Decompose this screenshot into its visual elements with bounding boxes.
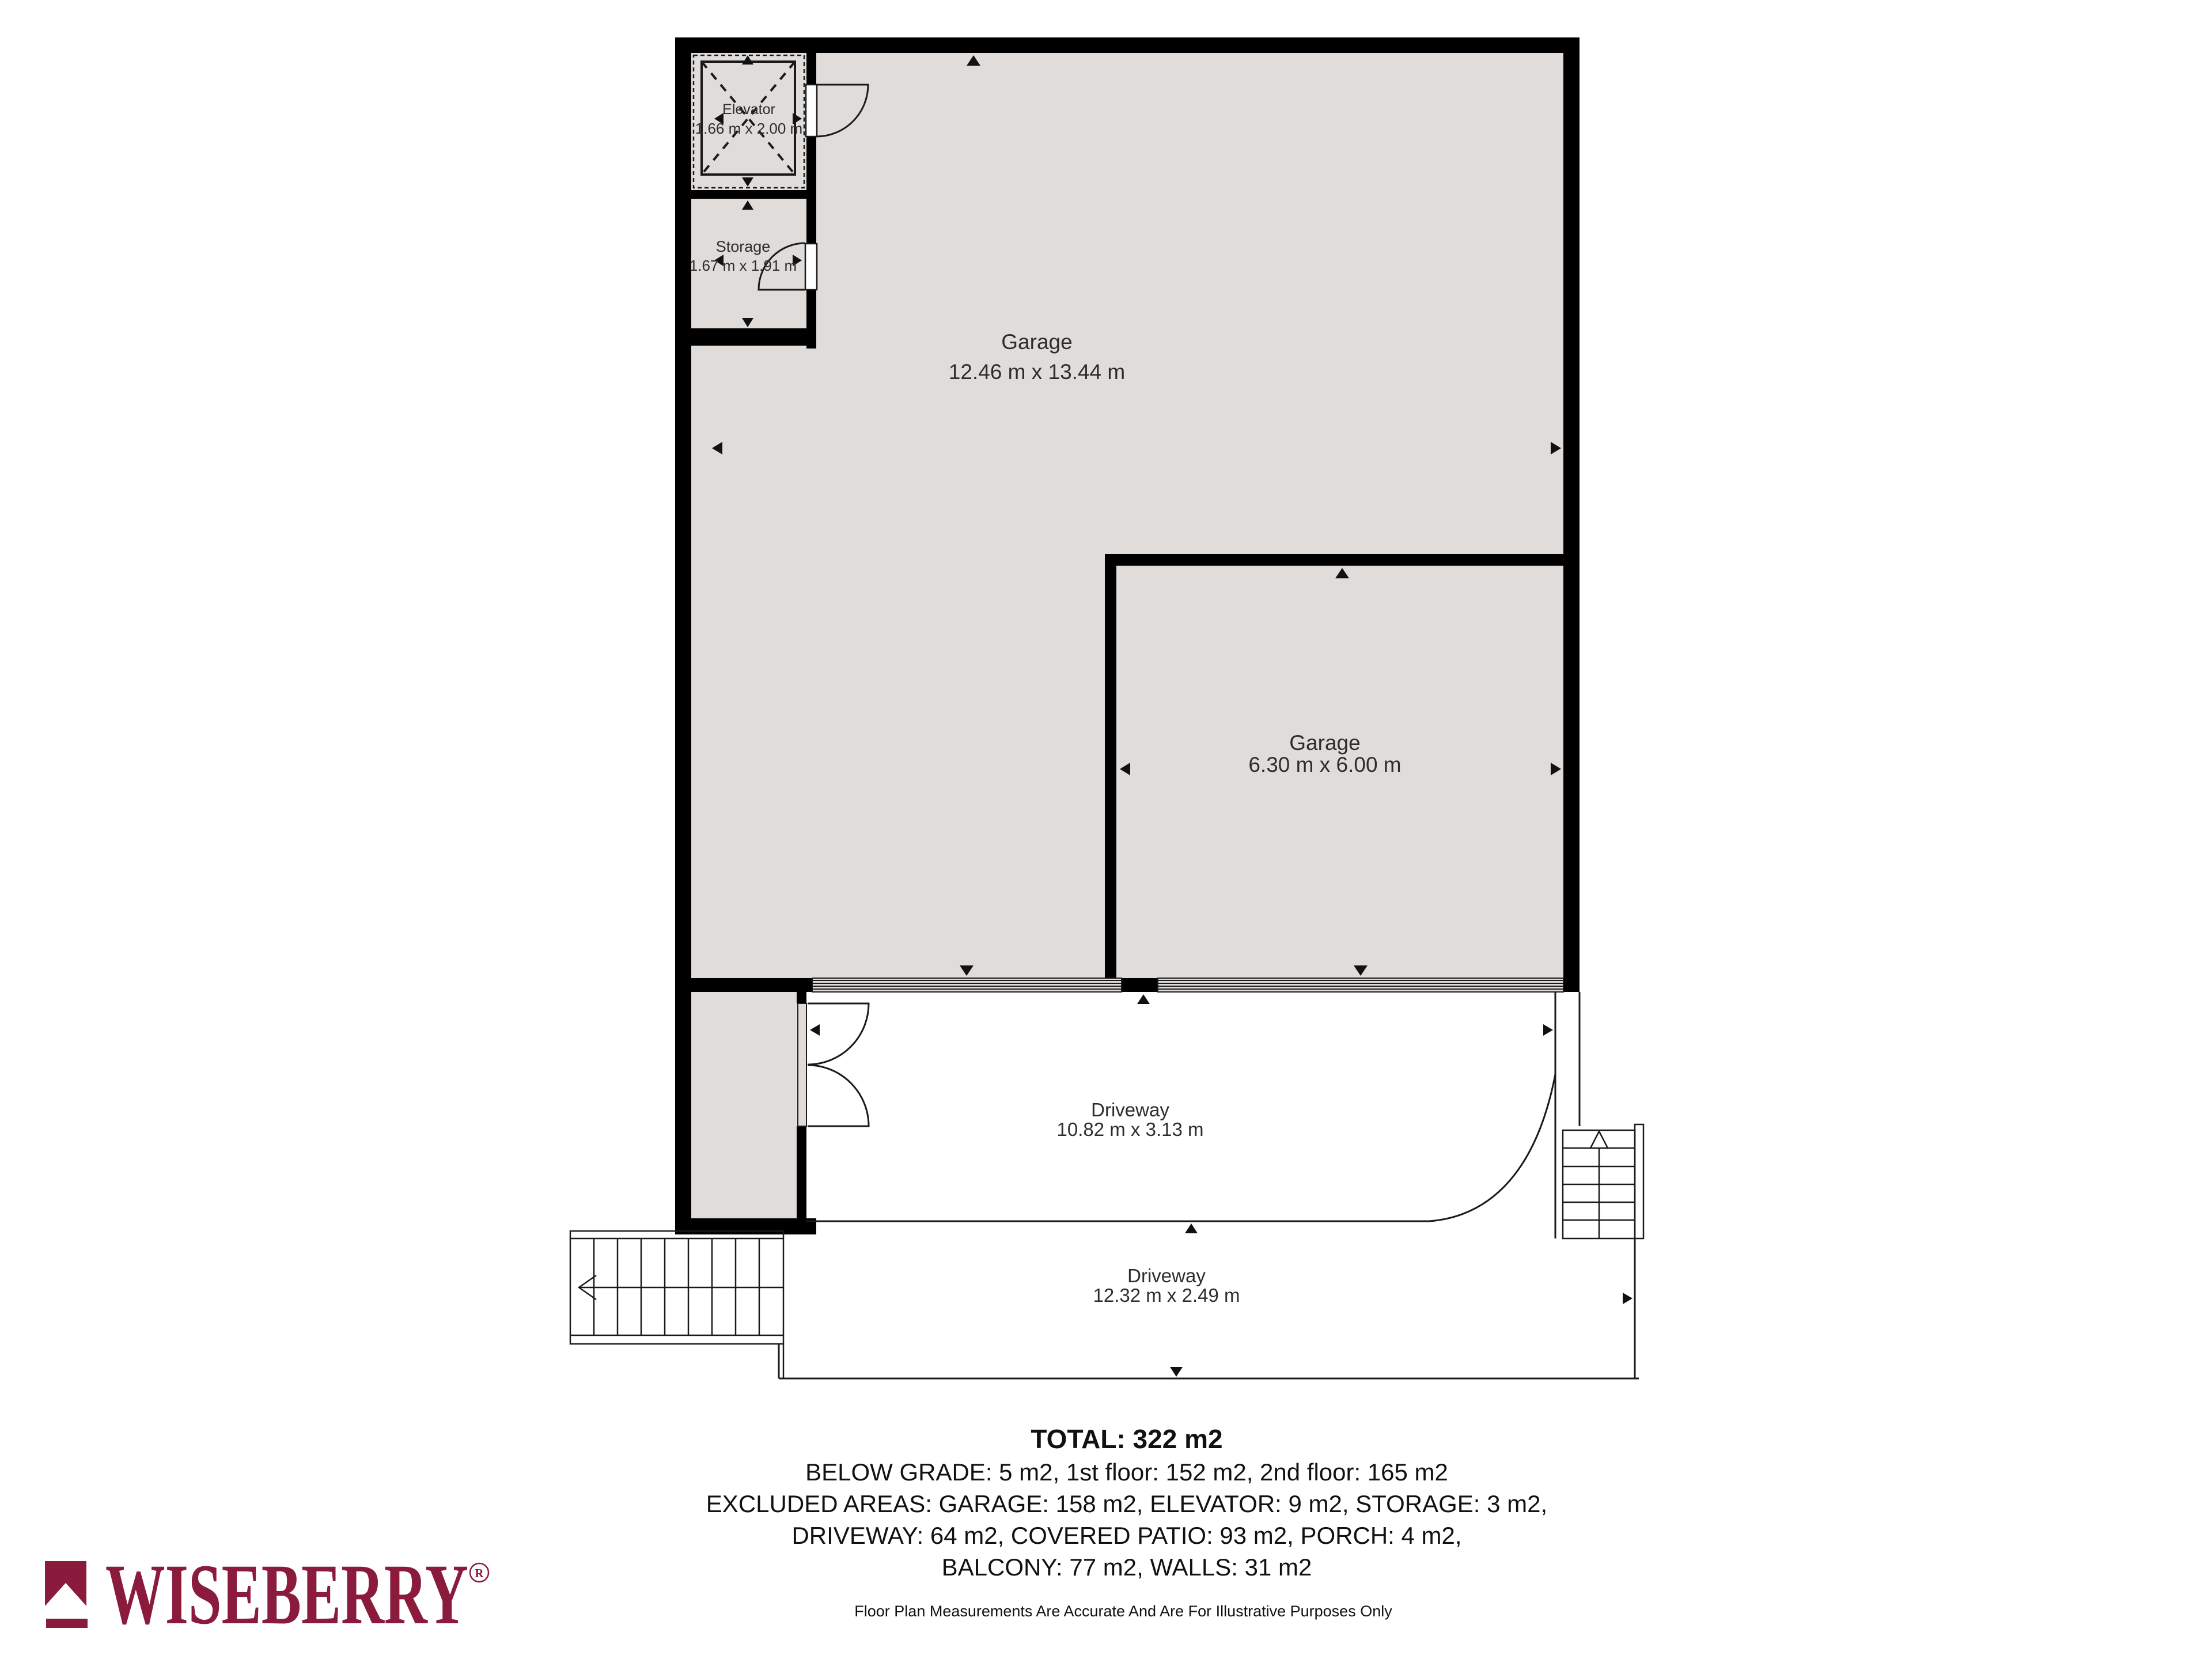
brand-mark-banner-icon bbox=[45, 1561, 86, 1606]
summary-line-3: DRIVEWAY: 64 m2, COVERED PATIO: 93 m2, P… bbox=[791, 1522, 1461, 1549]
arrow-down-icon bbox=[1170, 1367, 1183, 1377]
room-label-storage: Storage bbox=[716, 238, 771, 255]
arrow-left-icon bbox=[810, 1024, 820, 1036]
door-double-porch bbox=[798, 1003, 869, 1126]
floor-plan: Elevator 1.66 m x 2.00 m Storage 1.67 m … bbox=[0, 0, 2212, 1659]
garage-door-2 bbox=[1158, 978, 1563, 992]
room-label-driveway-1: Driveway bbox=[1091, 1099, 1169, 1120]
room-dims-garage-2: 6.30 m x 6.00 m bbox=[1248, 753, 1401, 777]
door-leaf bbox=[805, 244, 817, 290]
room-dims-elevator: 1.66 m x 2.00 m bbox=[695, 120, 802, 137]
arrow-right-icon bbox=[1543, 1024, 1553, 1036]
brand-mark-bar-icon bbox=[46, 1619, 88, 1628]
room-label-elevator: Elevator bbox=[722, 101, 775, 118]
registered-trademark-letter: R bbox=[475, 1566, 484, 1580]
room-label-driveway-2: Driveway bbox=[1127, 1265, 1206, 1286]
summary-block: TOTAL: 322 m2 BELOW GRADE: 5 m2, 1st flo… bbox=[706, 1424, 1547, 1620]
disclaimer-text: Floor Plan Measurements Are Accurate And… bbox=[854, 1603, 1392, 1620]
door-leaf bbox=[806, 85, 817, 137]
wall-garage2-top bbox=[1105, 554, 1563, 566]
summary-line-2: EXCLUDED AREAS: GARAGE: 158 m2, ELEVATOR… bbox=[706, 1490, 1547, 1517]
wall-garage2-left bbox=[1105, 554, 1116, 978]
porch-floor bbox=[691, 992, 797, 1218]
room-fills bbox=[691, 53, 1563, 1218]
total-area-text: TOTAL: 322 m2 bbox=[1031, 1424, 1222, 1454]
room-dims-driveway-1: 10.82 m x 3.13 m bbox=[1057, 1119, 1204, 1140]
door-frame bbox=[798, 1003, 806, 1126]
room-dims-garage: 12.46 m x 13.44 m bbox=[949, 360, 1125, 384]
wall-porch-right-upper bbox=[797, 992, 806, 1003]
stairs-outer-rail bbox=[1635, 1124, 1643, 1238]
wall-porch-right-lower bbox=[797, 1126, 806, 1234]
garage-door-1 bbox=[812, 978, 1122, 992]
arrow-right-icon bbox=[1623, 1293, 1633, 1304]
room-label-garage: Garage bbox=[1001, 330, 1072, 354]
garage-floor bbox=[691, 53, 1563, 978]
wall-left bbox=[675, 37, 691, 1234]
wall-porch-bottom bbox=[675, 1218, 816, 1234]
driveway-2-outline bbox=[779, 1238, 1639, 1378]
driveway-1-outline bbox=[806, 992, 1580, 1238]
arrow-up-icon bbox=[1185, 1224, 1198, 1233]
brand-logo: WISEBERRY R bbox=[45, 1547, 488, 1642]
floor-plan-page: Elevator 1.66 m x 2.00 m Storage 1.67 m … bbox=[0, 0, 2212, 1659]
wall-top bbox=[675, 37, 1580, 53]
summary-line-4: BALCONY: 77 m2, WALLS: 31 m2 bbox=[942, 1554, 1312, 1581]
door-swing-arc-bottom bbox=[808, 1065, 869, 1126]
stairs-left bbox=[570, 1231, 783, 1378]
wall-storage-bottom bbox=[691, 328, 816, 346]
wall-bottom-left-seg bbox=[675, 978, 812, 992]
brand-name: WISEBERRY bbox=[105, 1547, 468, 1642]
arrow-up-icon bbox=[1137, 994, 1150, 1004]
wall-elevator-storage-divider bbox=[691, 190, 806, 199]
stairs-direction-arrowhead bbox=[1590, 1131, 1608, 1148]
stairs-right bbox=[1563, 1124, 1643, 1238]
driveway-1-curve bbox=[1429, 1074, 1555, 1221]
room-dims-driveway-2: 12.32 m x 2.49 m bbox=[1093, 1285, 1240, 1306]
summary-line-1: BELOW GRADE: 5 m2, 1st floor: 152 m2, 2n… bbox=[805, 1459, 1448, 1486]
wall-right bbox=[1563, 37, 1580, 992]
room-dims-storage: 1.67 m x 1.91 m bbox=[690, 257, 797, 274]
room-label-garage-2: Garage bbox=[1289, 731, 1360, 755]
